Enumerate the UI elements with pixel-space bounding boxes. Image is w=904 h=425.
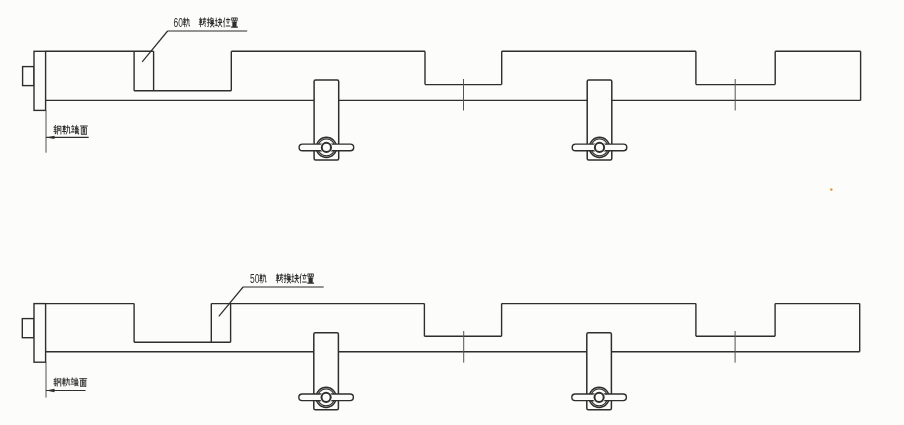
svg-text:50: 50 [250,271,259,285]
svg-text:60: 60 [174,15,183,29]
